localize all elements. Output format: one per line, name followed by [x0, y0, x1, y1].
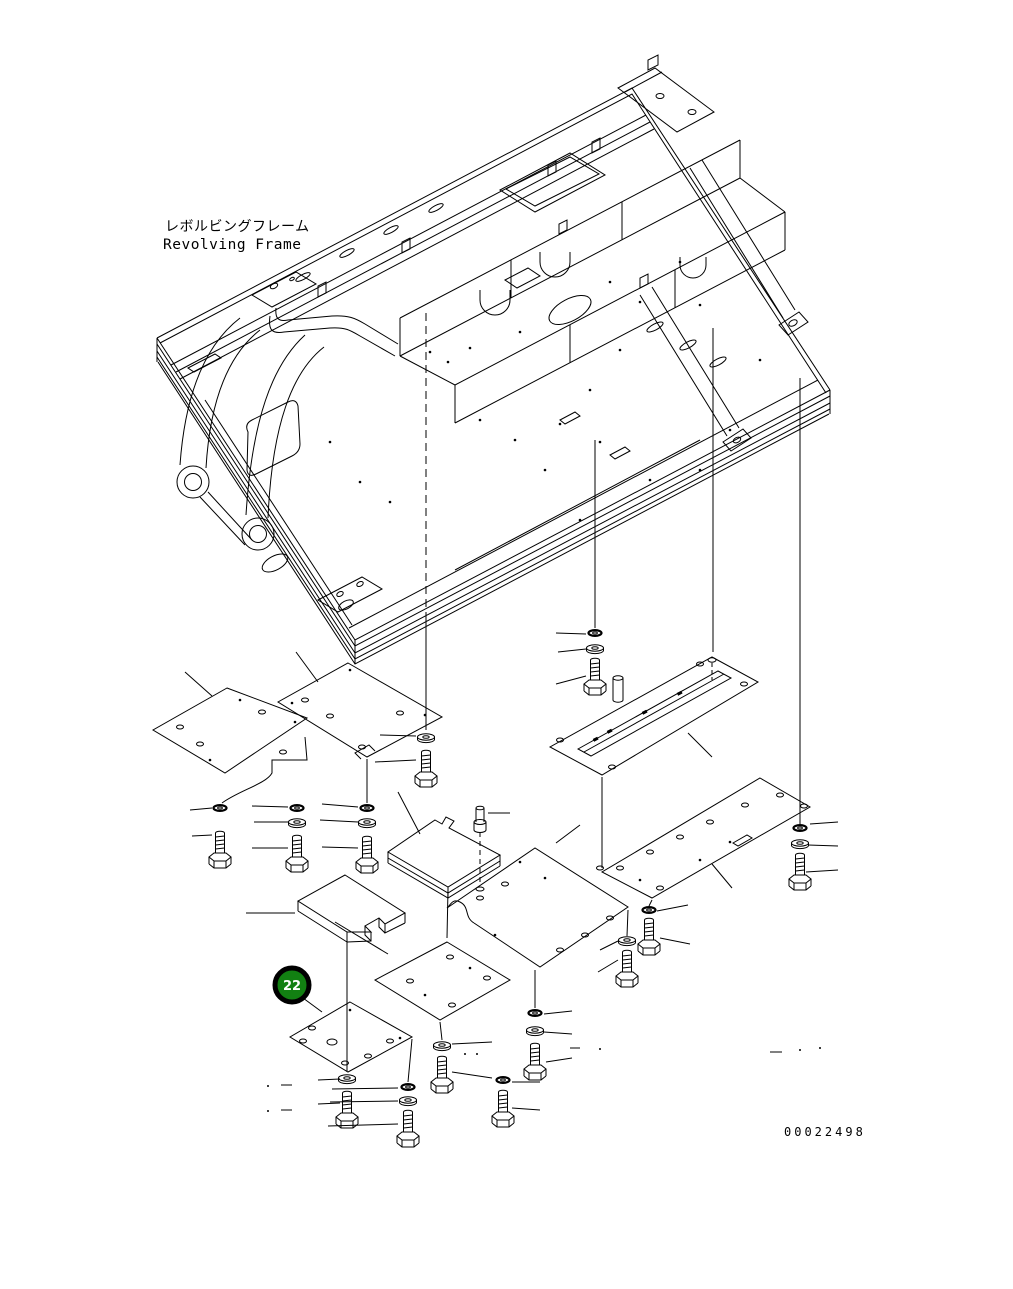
under-cover-plates — [153, 657, 810, 1072]
cover-plate-center-large — [447, 806, 628, 967]
cover-slab-upper — [388, 817, 500, 898]
cover-plate-right-long — [602, 778, 810, 898]
cover-plate-channel — [550, 657, 758, 775]
mounting-hardware — [209, 630, 811, 1147]
cover-plate-center-left — [278, 663, 442, 759]
cover-plate-bottom-center — [375, 942, 510, 1020]
cover-plate-callout-target — [290, 1002, 412, 1072]
title-japanese: レボルビングフレーム — [165, 219, 310, 235]
assembly-connector-lines — [222, 313, 800, 1082]
leader-lines — [185, 633, 838, 1126]
title-english: Revolving Frame — [163, 237, 301, 253]
revolving-frame-parts-drawing: 22 レボルビングフレーム Revolving Frame 00022498 — [0, 0, 1013, 1289]
revolving-frame-illustration — [157, 55, 830, 664]
callout-leader-line — [303, 998, 322, 1012]
part-callout-22[interactable]: 22 — [275, 968, 322, 1012]
callout-number: 22 — [283, 979, 301, 994]
parts-diagram-page: 22 レボルビングフレーム Revolving Frame 00022498 — [0, 0, 1013, 1289]
drawing-number: 00022498 — [784, 1125, 866, 1139]
